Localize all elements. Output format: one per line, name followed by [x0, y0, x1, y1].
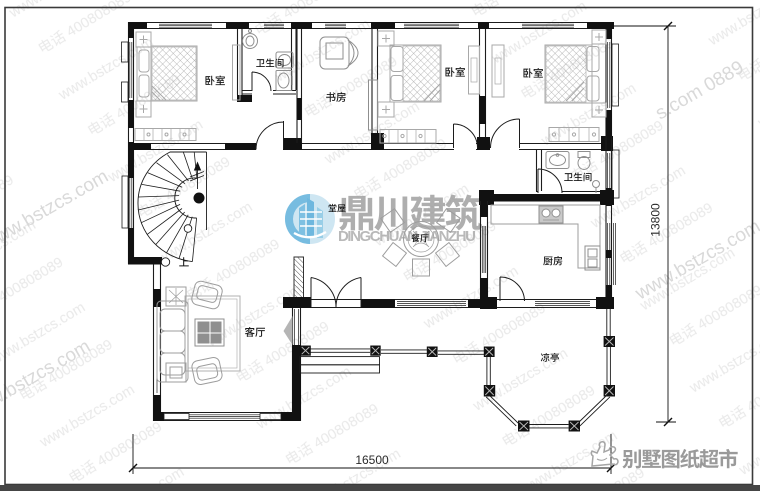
svg-text:13800: 13800 — [649, 203, 663, 237]
svg-text:DINGCHUAN JIANZHU: DINGCHUAN JIANZHU — [338, 228, 476, 245]
svg-text:16500: 16500 — [355, 453, 389, 467]
